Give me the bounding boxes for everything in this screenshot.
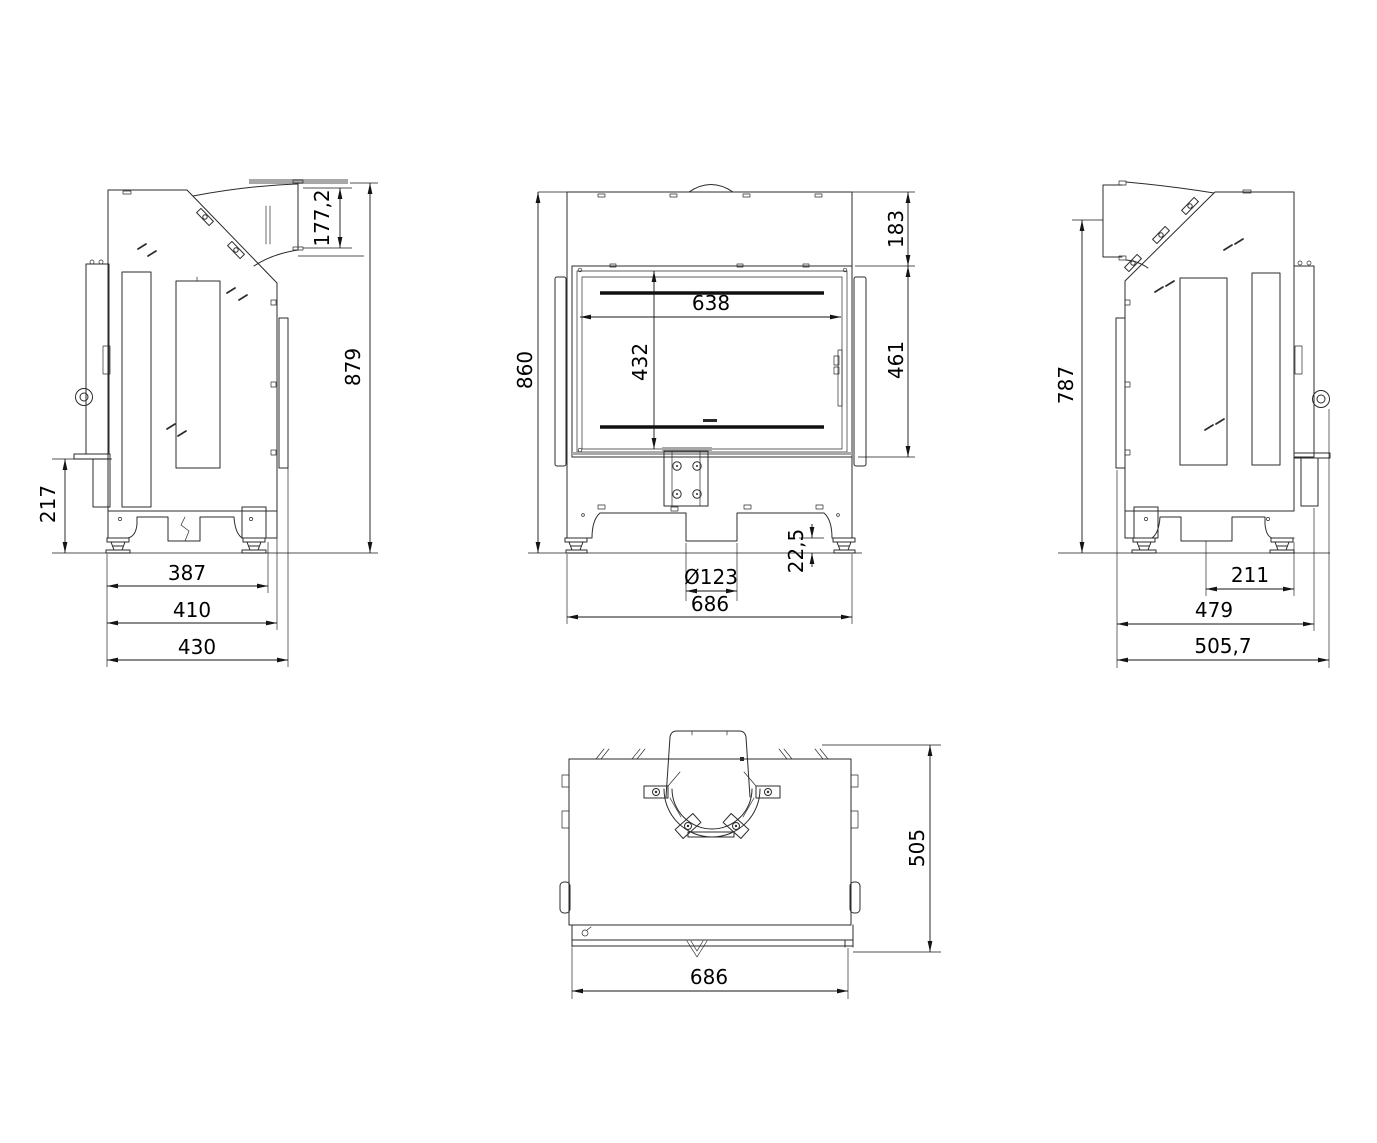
logo-mark: [582, 927, 591, 936]
screw-icon: [743, 194, 750, 197]
screw-icon: [271, 382, 276, 387]
flue-pipe-top: [666, 731, 750, 797]
screw-icon: [1125, 300, 1130, 305]
left-heat-shield-panels: [122, 272, 288, 507]
left-door-profile: [74, 260, 110, 507]
top-dimensions: 505 686: [572, 745, 941, 999]
flue-collar-clamp: [644, 772, 780, 838]
door-handle-icon: [76, 389, 93, 406]
screw-icon: [815, 194, 822, 197]
vent-slot-marks: [1155, 239, 1243, 430]
dim-body-depth-right: 479: [1195, 598, 1233, 622]
dim-top-section: 183: [884, 210, 908, 248]
technical-drawing-page: 177,2 879 217 387 410 430: [0, 0, 1377, 1143]
dim-overall-depth-right: 505,7: [1194, 634, 1251, 658]
right-door-profile: [1294, 261, 1330, 506]
side-shield-left: [555, 277, 566, 466]
side-shield-right: [854, 277, 866, 466]
front-body-outline: [555, 185, 866, 539]
dim-flue-outlet-height: 177,2: [310, 189, 334, 246]
clamp-bolt-icon: [197, 208, 245, 258]
front-view: 860 183 461 638 432 Ø123 686 22,5: [513, 185, 915, 625]
left-adjustable-feet: [106, 538, 266, 553]
dim-overall-height-left: 879: [341, 348, 365, 386]
center-bracket: [664, 451, 708, 506]
dim-plinth-height: 217: [36, 485, 60, 523]
dim-inlet-to-front: 211: [1231, 563, 1269, 587]
dim-glass-height: 432: [628, 343, 652, 381]
screw-icon: [271, 450, 276, 455]
technical-drawing-canvas: 177,2 879 217 387 410 430: [0, 0, 1377, 1143]
front-adjustable-feet: [565, 538, 855, 553]
screw-icon: [1125, 382, 1130, 387]
dim-door-height: 461: [884, 341, 908, 379]
top-view: 505 686: [560, 731, 941, 999]
rear-foot-bracket: [1134, 507, 1158, 538]
dim-overall-depth-left: 430: [178, 635, 216, 659]
right-flue-outlet: [1103, 181, 1214, 268]
dim-air-inlet-diameter: Ø123: [684, 565, 738, 589]
vent-slot-marks: [138, 244, 247, 436]
right-side-view: 787 211 479 505,7: [1054, 181, 1330, 668]
front-dimensions: 860 183 461 638 432 Ø123 686 22,5: [513, 192, 915, 624]
glass-logo-mark: [703, 419, 717, 422]
dim-overall-width-top: 686: [690, 965, 728, 989]
screw-icon: [598, 194, 605, 197]
right-heat-shield-panels: [1116, 273, 1280, 468]
dim-body-depth-left: 410: [173, 598, 211, 622]
screw-icon: [123, 191, 131, 194]
dim-overall-height-front: 860: [513, 351, 537, 389]
center-notch: [687, 941, 707, 957]
left-dimensions: 177,2 879 217 387 410 430: [36, 183, 378, 667]
door-handle-icon: [1313, 391, 1330, 408]
screw-icon: [1125, 450, 1130, 455]
dim-foot-height: 22,5: [784, 529, 808, 574]
dim-overall-depth-top: 505: [905, 829, 929, 867]
left-body-outline: [108, 190, 277, 541]
bracket-tabs: [596, 749, 828, 759]
flue-marking: [266, 206, 270, 244]
clamp-bolt-icon: [1125, 197, 1199, 271]
rear-foot-bracket: [242, 507, 266, 538]
right-dimensions: 787 211 479 505,7: [1054, 220, 1330, 668]
dim-overall-width-front: 686: [691, 592, 729, 616]
screw-icon: [670, 194, 677, 197]
top-front-strip: [572, 925, 853, 957]
dim-rear-height: 787: [1054, 366, 1078, 404]
left-side-view: 177,2 879 217 387 410 430: [36, 179, 378, 667]
break-line: [181, 517, 189, 541]
screw-icon: [271, 300, 276, 305]
dim-glass-width: 638: [692, 291, 730, 315]
door-latch-icon: [834, 350, 842, 406]
flue-dome: [689, 185, 733, 193]
right-body-outline: [1125, 190, 1294, 541]
dim-feet-span: 387: [168, 561, 206, 585]
latch-bracket: [1295, 346, 1302, 374]
right-adjustable-feet: [1132, 538, 1294, 553]
